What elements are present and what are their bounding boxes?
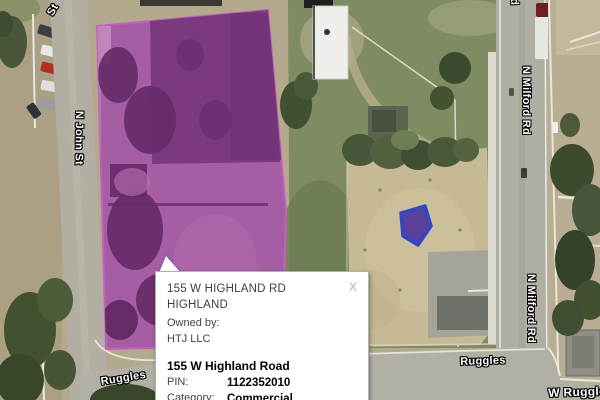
street-label-rd-partial: d	[508, 0, 520, 5]
roof-vent	[324, 29, 330, 35]
east-roadside-strip	[548, 0, 600, 400]
gis-map-view: St N John St N Milford Rd N Milford Rd R…	[0, 0, 600, 400]
owner-name: HTJ LLC	[167, 332, 357, 347]
category-value: Commercial	[227, 391, 293, 400]
popup-close-button[interactable]: X	[343, 281, 357, 293]
street-label-n-milford-rd-south: N Milford Rd	[525, 274, 537, 343]
street-label-n-milford-rd-north: N Milford Rd	[520, 66, 532, 135]
street-label-ruggles-east: Ruggles	[460, 354, 506, 368]
category-label: Category:	[167, 391, 227, 400]
parcel-address: 155 W Highland Road	[167, 358, 357, 375]
owned-by-label: Owned by:	[167, 316, 357, 331]
pin-value: 1122352010	[227, 375, 290, 391]
pin-label: PIN:	[167, 375, 227, 391]
parcel-info-popup: 155 W HIGHLAND RD HIGHLAND X Owned by: H…	[155, 271, 369, 400]
road-n-milford-rd	[496, 0, 551, 400]
street-label-n-john-st: N John St	[73, 111, 85, 165]
street-label-w-ruggles: W Ruggles	[548, 384, 600, 400]
popup-title: 155 W HIGHLAND RD HIGHLAND	[167, 281, 343, 313]
sidewalk	[488, 52, 496, 344]
